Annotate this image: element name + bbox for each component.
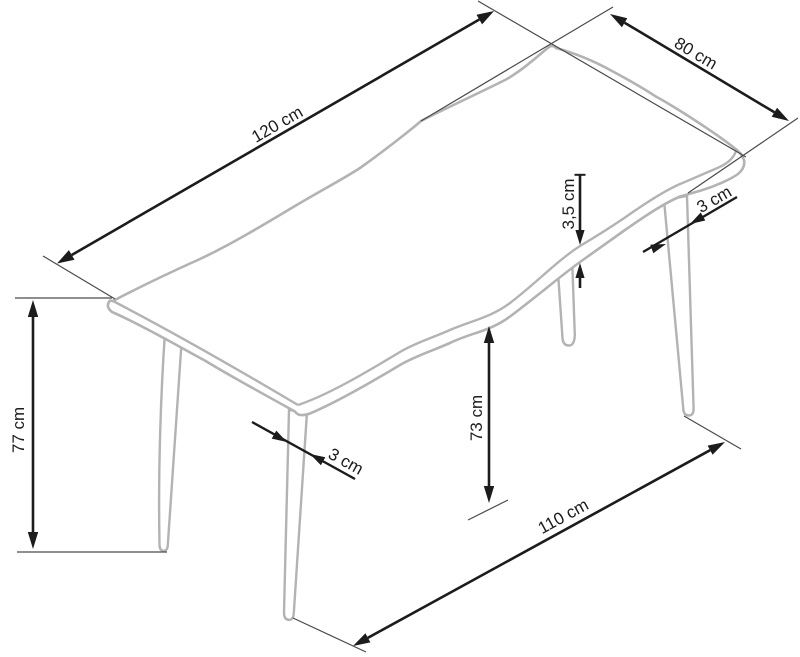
svg-text:77 cm: 77 cm bbox=[9, 407, 28, 453]
svg-text:73 cm: 73 cm bbox=[467, 395, 486, 441]
svg-text:3,5 cm: 3,5 cm bbox=[559, 178, 578, 229]
